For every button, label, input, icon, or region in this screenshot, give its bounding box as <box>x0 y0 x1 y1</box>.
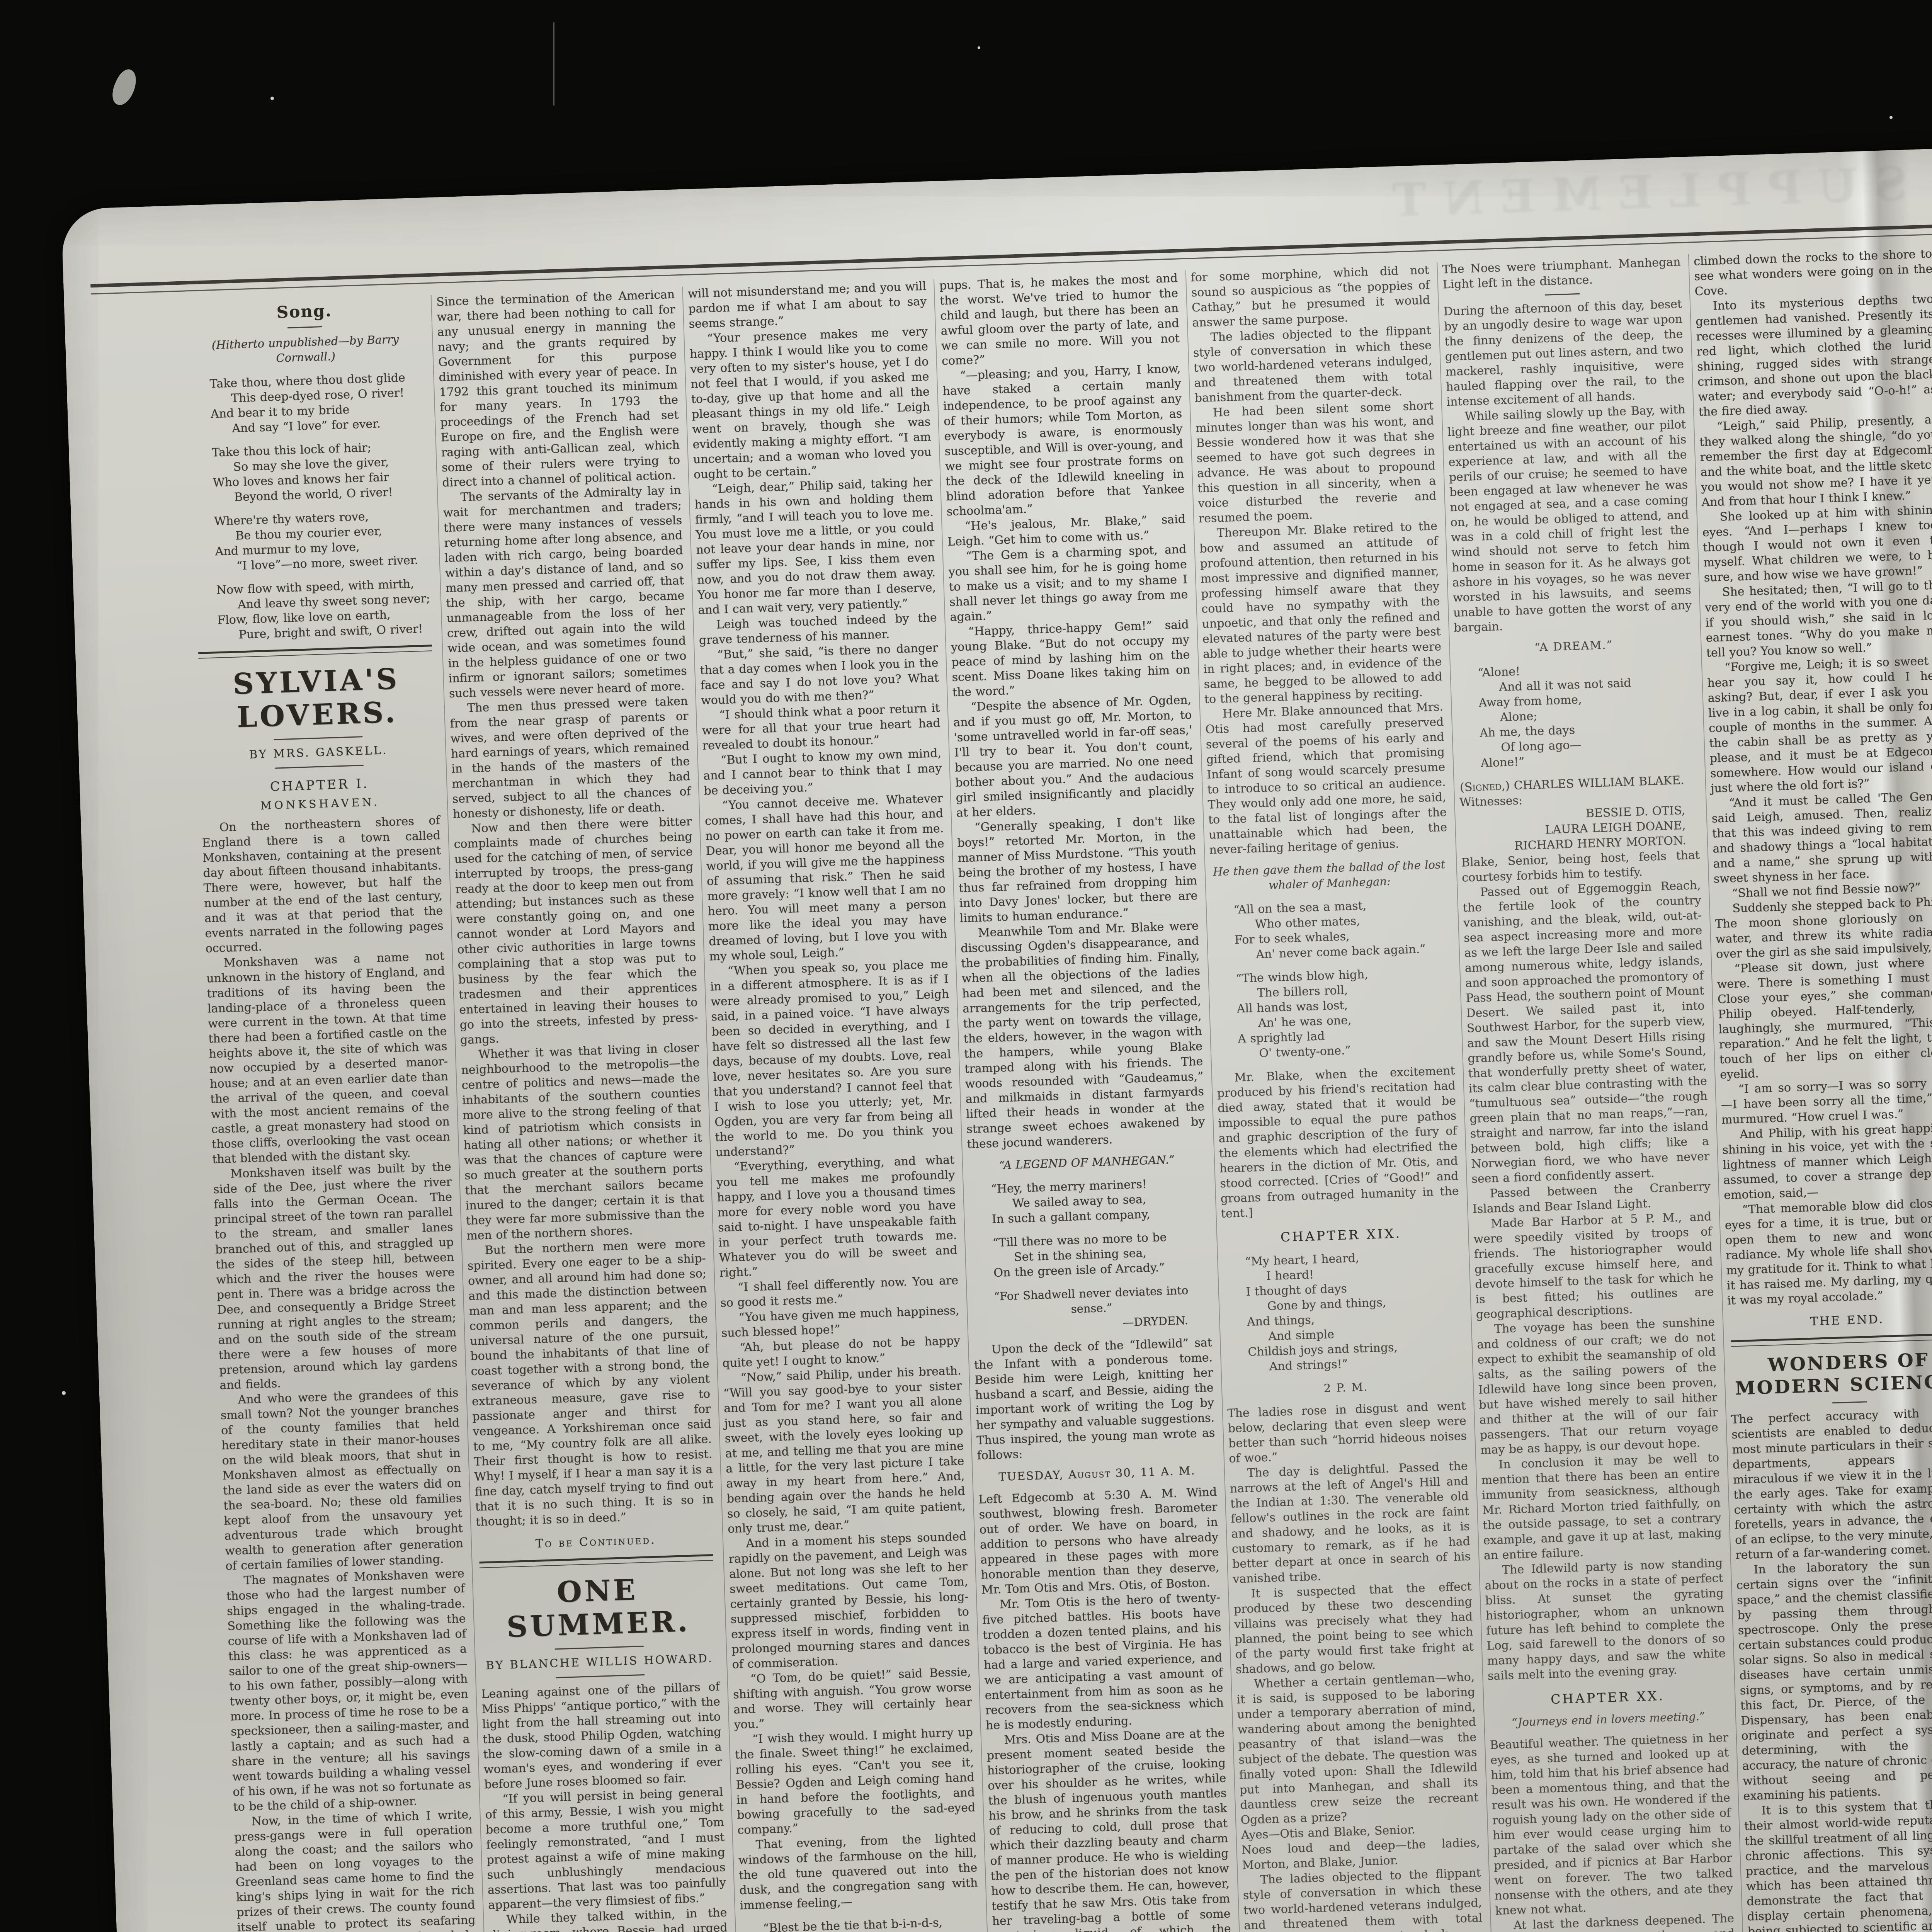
paragraph: Suddenly she stepped back to Philip. The… <box>1714 894 1932 962</box>
paragraph: Left Edgecomb at 5:30 A. M. Wind southwe… <box>978 1485 1220 1598</box>
paragraph: Monkshaven itself was built by the side … <box>213 1159 458 1393</box>
paragraph: “That memorable blow did close my eyes f… <box>1724 1195 1932 1308</box>
paragraph: The servants of the Admiralty lay in wai… <box>442 483 687 701</box>
paragraph: But the northern men were more spirited.… <box>467 1236 714 1530</box>
paragraph: “When you speak so, you place me in a di… <box>709 957 954 1160</box>
paragraph: Made Bar Harbor at 5 P. M., and were spe… <box>1473 1209 1715 1322</box>
paragraph: Into its mysterious depths two gentlemen… <box>1695 291 1932 420</box>
paragraph: During the afternoon of this day, beset … <box>1443 296 1685 410</box>
wonders-of-modern-science-heading: WONDERS OF MODERN SCIENCE. <box>1729 1348 1932 1400</box>
ghost-showthrough-text: SUPPLEMENT <box>1376 156 1908 227</box>
chapter-xx-heading: CHAPTER XX. <box>1488 1686 1727 1709</box>
paragraph: The ladies objected to the flippant styl… <box>1242 1865 1483 1932</box>
rule-double <box>1731 1333 1932 1347</box>
paragraph: “Despite the absence of Mr. Ogden, and i… <box>953 692 1195 821</box>
song-stanza-2: Take thou this lock of hair;So may she l… <box>212 438 430 505</box>
paragraph: “Leigh, dear,” Philip said, taking her h… <box>694 474 937 618</box>
paragraph: The Noes were triumphant. Manhegan Light… <box>1442 254 1681 292</box>
paragraph: “—pleasing; and you, Harry, I know, have… <box>942 361 1185 519</box>
paragraph: “O Tom, do be quiet!” said Bessie, shift… <box>732 1665 973 1733</box>
paragraph: “If you will persist in being general of… <box>485 1784 727 1913</box>
scanner-dust-blob <box>108 66 141 109</box>
dust-speck <box>270 97 274 100</box>
verse-line: “Blest be the tie that b-i-n-d-s, <box>763 1914 979 1932</box>
paragraph: The ladies objected to the flippant styl… <box>1192 323 1433 406</box>
a-dream-heading: “A DREAM.” <box>1454 635 1693 658</box>
dream-verse: “Alone!And all it was not saidAway from … <box>1478 658 1697 771</box>
chapter-i-heading: CHAPTER I. <box>200 774 439 796</box>
the-end-mark: THE END. <box>1728 1309 1932 1332</box>
paragraph: It is to this system that they owe their… <box>1743 1796 1932 1932</box>
paragraph: The magnates of Monkshaven were those wh… <box>226 1566 472 1815</box>
paragraph: Here Mr. Blake announced that Mrs. Otis … <box>1205 699 1448 858</box>
paragraph: “Your presence makes me very happy. I th… <box>689 324 932 482</box>
paragraph: “I wish they would. I might hurry up the… <box>734 1725 976 1838</box>
paragraph: He had been silent some short minutes lo… <box>1195 398 1437 526</box>
paragraph: Meanwhile Tom and Mr. Blake were discuss… <box>960 918 1206 1152</box>
paragraph: “Everything, everything, and what you te… <box>716 1152 958 1281</box>
paragraph: Monkshaven was a name not unknown in the… <box>206 949 451 1167</box>
paragraph: The perfect accuracy with which scientis… <box>1731 1405 1932 1563</box>
paragraph: That evening, from the lighted windows o… <box>738 1830 978 1913</box>
rule-tiny <box>1545 293 1580 296</box>
chapter-xx-epigraph: “Journeys end in lovers meeting.” <box>1489 1708 1728 1731</box>
rule-double <box>480 1554 713 1568</box>
paragraph: Thereupon Mr. Blake retired to the bow a… <box>1199 519 1443 707</box>
whaler-ballad-2: “The winds blow high,The billers roll,Al… <box>1236 964 1454 1062</box>
to-be-continued-mark: To be Continued. <box>476 1531 715 1553</box>
paragraph: In conclusion it may be well to mention … <box>1481 1450 1723 1563</box>
paragraph: “Please sit down, just where you were. T… <box>1716 954 1932 1082</box>
rule-short <box>274 736 362 740</box>
paragraph: In the laboratory the sun sends certain … <box>1736 1555 1932 1804</box>
rule-short <box>556 1674 645 1678</box>
paragraph: “You cannot deceive me. Whatever comes, … <box>704 791 948 964</box>
sylvias-lovers-byline: BY MRS. GASKELL. <box>199 741 438 764</box>
song-stanza-3: Where're thy waters rove,Be thou my cour… <box>214 507 432 574</box>
paragraph: Mr. Tom Otis is the hero of twenty-five … <box>982 1590 1225 1733</box>
rule-tiny <box>287 326 322 328</box>
paragraph: “Leigh,” said Philip, presently, as they… <box>1699 412 1932 510</box>
legend-of-manhegan-line: “A LEGEND OF MANHEGAN.” <box>968 1151 1206 1174</box>
paragraph: The ladies rose in disgust and went belo… <box>1227 1398 1468 1466</box>
heart-verse: “My heart, I heard,I heard!I thought of … <box>1245 1247 1464 1375</box>
paragraph: Passed out of Eggemoggin Reach, the fert… <box>1462 878 1710 1187</box>
scanned-newspaper-screenshot: { "page": { "background_color": "#0a0a09… <box>0 0 1932 1932</box>
paragraph: will not misunderstand me; and you will … <box>687 279 927 332</box>
paragraph: While sailing slowly up the Bay, with li… <box>1447 402 1692 636</box>
paragraph: “Generally speaking, I don't like boys!”… <box>957 813 1199 926</box>
paragraph: pups. That is, he makes the most and the… <box>939 270 1180 369</box>
paragraph: Now and then there were bitter complaint… <box>453 814 699 1048</box>
rule-short <box>555 1646 644 1650</box>
paragraph: Beautiful weather. The quietness in her … <box>1490 1730 1734 1918</box>
paragraph: Mr. Blake, when the excitement produced … <box>1216 1063 1459 1221</box>
paragraph: “But,” she said, “is there no danger tha… <box>699 640 940 708</box>
paragraph: “But I ought to know my own mind, and I … <box>703 746 943 799</box>
one-summer-byline: BY BLANCHE WILLIS HOWARD. <box>480 1651 719 1673</box>
paragraph: “Forgive me, Leigh; it is so sweet to he… <box>1707 653 1932 796</box>
citalic-block: He then gave them the ballad of the lost… <box>1210 857 1449 895</box>
paragraph: climbed down the rocks to the shore to s… <box>1694 246 1932 299</box>
paragraph: Leaning against one of the pillars of Mi… <box>481 1679 723 1793</box>
paragraph: And in a moment his steps sounded rapidl… <box>728 1529 971 1672</box>
dust-speck <box>978 46 980 49</box>
paragraph: The voyage has been the sunshine and col… <box>1476 1315 1719 1458</box>
rule-tiny <box>1832 1401 1867 1403</box>
verse-block: “Till there was no more to beSet in the … <box>992 1228 1210 1281</box>
song-heading: Song. <box>185 298 423 325</box>
song-stanza-1: Take thou, where thou dost glideThis dee… <box>209 369 427 437</box>
whaler-ballad-1: “All on the sea a mast,Who other mates,F… <box>1233 896 1451 963</box>
song-stanza-4: Now flow with speed, with mirth,And leav… <box>216 576 434 643</box>
dryden-epigraph: “For Shadwell never deviates into sense.… <box>977 1282 1206 1335</box>
paragraph: Whether a certain gentleman—who, it is s… <box>1236 1670 1479 1828</box>
paragraph: Upon the deck of the “Idlewild” sat the … <box>973 1335 1216 1463</box>
paragraph: “I am so sorry—I was so sorry then—I hav… <box>1720 1075 1932 1128</box>
log-time-2pm: 2 P. M. <box>1226 1376 1465 1399</box>
paragraph: The Idlewild party is now standing about… <box>1484 1556 1726 1684</box>
paragraph: And who were the grandees of this small … <box>220 1385 464 1574</box>
paragraph: Since the termination of the American wa… <box>436 287 681 491</box>
log-date-tuesday: TUESDAY, August 30, 11 A. M. <box>978 1463 1216 1485</box>
paragraph: “And it must be called 'The Gem,'” said … <box>1711 789 1932 887</box>
dust-speck <box>62 1391 66 1395</box>
paragraph: “I should think what a poor return it we… <box>701 701 941 753</box>
one-summer-title: ONE SUMMER. <box>478 1571 718 1645</box>
dust-speck <box>1889 116 1893 119</box>
paragraph: On the northeastern shores of England th… <box>201 813 444 956</box>
paragraph: It is suspected that the effect produced… <box>1233 1579 1474 1677</box>
paragraph: She hesitated; then, “I will go to the v… <box>1704 578 1932 661</box>
song-credit: (Hitherto unpublished—by Barry Cornwall.… <box>186 331 425 369</box>
paragraph: for some morphine, which did not sound s… <box>1190 262 1431 330</box>
paragraph: She looked up at him with shining eyes. … <box>1702 502 1932 585</box>
paragraph: Now, in the time of which I write, press… <box>233 1807 476 1932</box>
paragraph: And Philip, with his great happiness shi… <box>1722 1120 1932 1203</box>
paragraph: “Now,” said Philip, under his breath. “W… <box>723 1363 966 1537</box>
rule-double <box>198 645 432 659</box>
columns: Song.(Hitherto unpublished—by Barry Corn… <box>180 246 1932 1932</box>
paragraph: “The Gem is a charming spot, and you sha… <box>948 542 1189 625</box>
chapter-xix-heading: CHAPTER XIX. <box>1221 1224 1460 1247</box>
monkshaven-subheading: MONKSHAVEN. <box>201 793 439 815</box>
hymn-verse: “Blest be the tie that b-i-n-d-s,Am de,O… <box>763 1914 981 1932</box>
paragraph: The day is delightful. Passed the narrow… <box>1229 1459 1471 1587</box>
newspaper-page: SUPPLEMENT Song.(Hitherto unpublished—by… <box>61 146 1932 1932</box>
paragraph: Mrs. Otis and Miss Doane are at the pres… <box>986 1726 1232 1932</box>
paragraph: “Happy, thrice-happy Gem!” said young Bl… <box>950 617 1191 700</box>
sylvias-lovers-title: SYLVIA'S LOVERS. <box>196 661 437 735</box>
paragraph: The men thus pressed were taken from the… <box>449 694 692 822</box>
paragraph: Whether it was that living in closer nei… <box>461 1040 705 1244</box>
scanner-scratch-top <box>553 22 554 105</box>
rule-short <box>274 765 363 769</box>
verse-block: “Hey, the merry mariners!We sailed away … <box>991 1175 1208 1227</box>
